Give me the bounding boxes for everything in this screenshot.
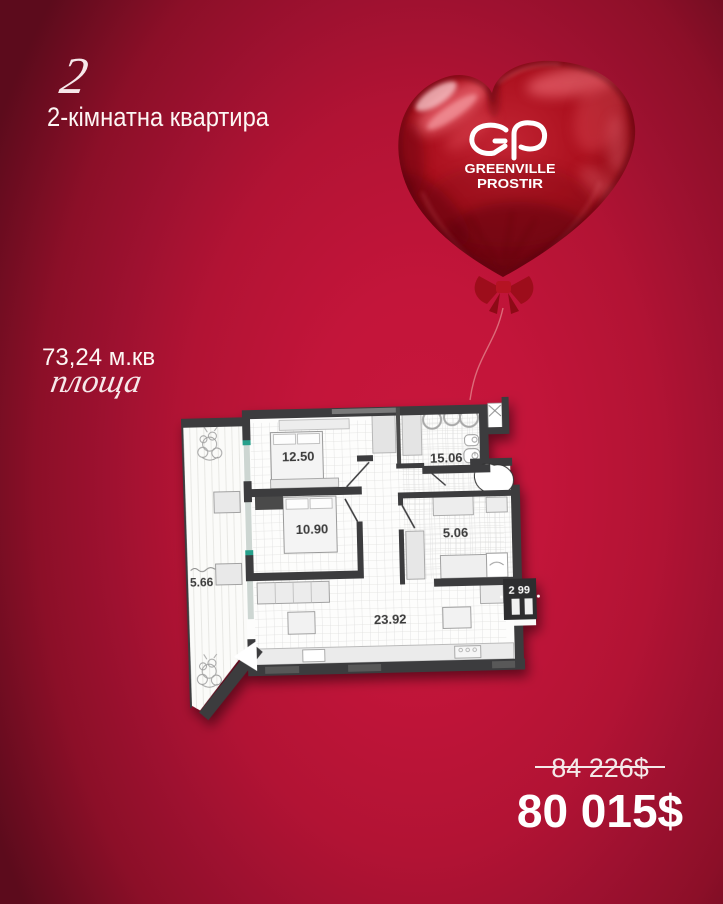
svg-text:12.50: 12.50	[282, 449, 315, 465]
svg-text:PROSTIR: PROSTIR	[477, 176, 544, 191]
svg-text:5.66: 5.66	[190, 575, 214, 590]
svg-text:2 99: 2 99	[508, 584, 530, 597]
svg-text:15.06: 15.06	[430, 450, 463, 466]
svg-text:5.06: 5.06	[443, 525, 469, 541]
svg-text:10.90: 10.90	[296, 521, 329, 537]
svg-text:GREENVILLE: GREENVILLE	[465, 161, 556, 176]
svg-text:23.92: 23.92	[374, 611, 407, 627]
